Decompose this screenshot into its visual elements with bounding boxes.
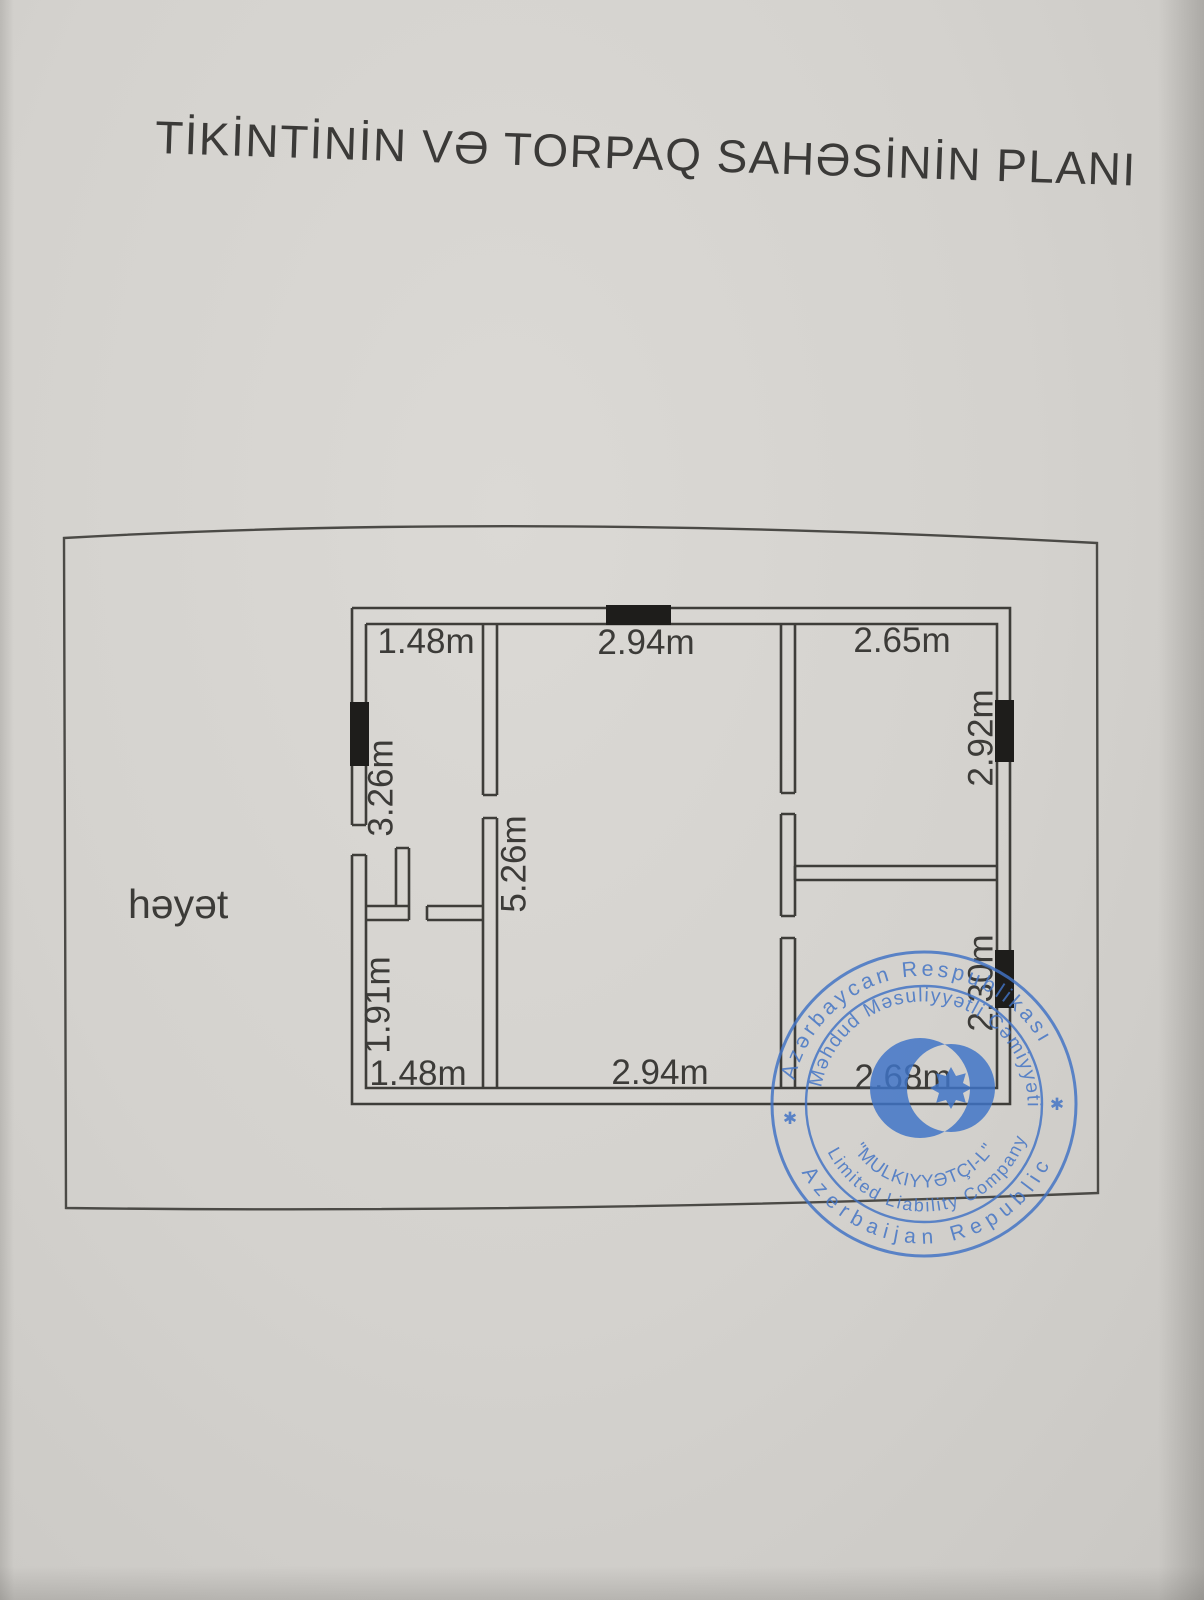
- dimension-labels: 1.48m 2.94m 2.65m 3.26m 5.26m 1.91m 2.92…: [359, 621, 1001, 1097]
- stamp-star-left-icon: ✱: [783, 1109, 797, 1128]
- interior-wall-right: [781, 624, 795, 1088]
- eight-point-star-icon: [930, 1067, 972, 1109]
- window-marker-top: [606, 605, 671, 625]
- stamp-star-right-icon: ✱: [1050, 1095, 1064, 1114]
- dimension-label-right-upper: 2.92m: [962, 689, 1001, 786]
- interior-wall-hall: [366, 906, 483, 920]
- scanned-document-page: TİKİNTİNİN VƏ TORPAQ SAHƏSİNİN PLANI həy…: [0, 0, 1204, 1600]
- dimension-label-bottom-center: 2.94m: [611, 1053, 708, 1092]
- dimension-label-top-center: 2.94m: [597, 623, 694, 662]
- window-markers: [350, 605, 1014, 1008]
- dimension-label-bottom-left: 1.48m: [369, 1054, 466, 1093]
- vestibule-stub-wall: [396, 848, 409, 906]
- dimension-label-center: 5.26m: [495, 815, 534, 912]
- yard-label: həyət: [128, 881, 229, 927]
- dimension-label-left-lower: 1.91m: [359, 956, 398, 1053]
- site-plan-drawing: həyət: [0, 0, 1204, 1600]
- outer-wall-inner-line: [366, 624, 997, 1088]
- building-walls: [352, 608, 1010, 1104]
- dimension-label-top-right: 2.65m: [853, 621, 950, 660]
- dimension-label-left-upper: 3.26m: [362, 739, 401, 836]
- interior-wall-right-horizontal: [795, 866, 997, 880]
- dimension-label-top-left: 1.48m: [377, 622, 474, 661]
- outer-wall-outer-line: [352, 608, 1010, 1104]
